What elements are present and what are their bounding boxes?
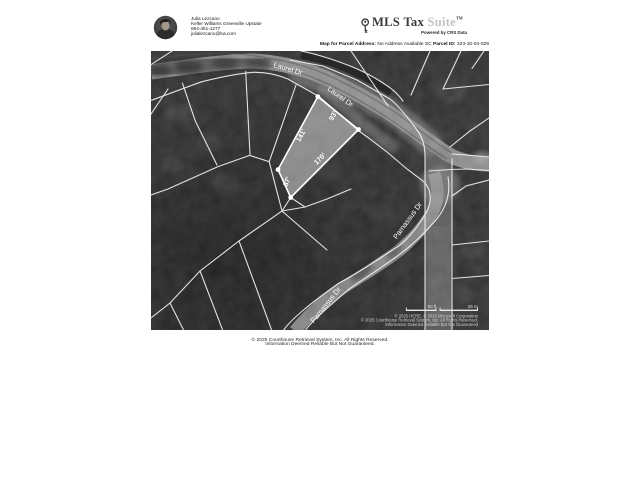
svg-text:50 ft: 50 ft: [428, 304, 438, 309]
svg-text:Information Deemed Reliable Bu: Information Deemed Reliable But Not Guar…: [385, 322, 478, 327]
svg-text:25 m: 25 m: [468, 304, 478, 309]
